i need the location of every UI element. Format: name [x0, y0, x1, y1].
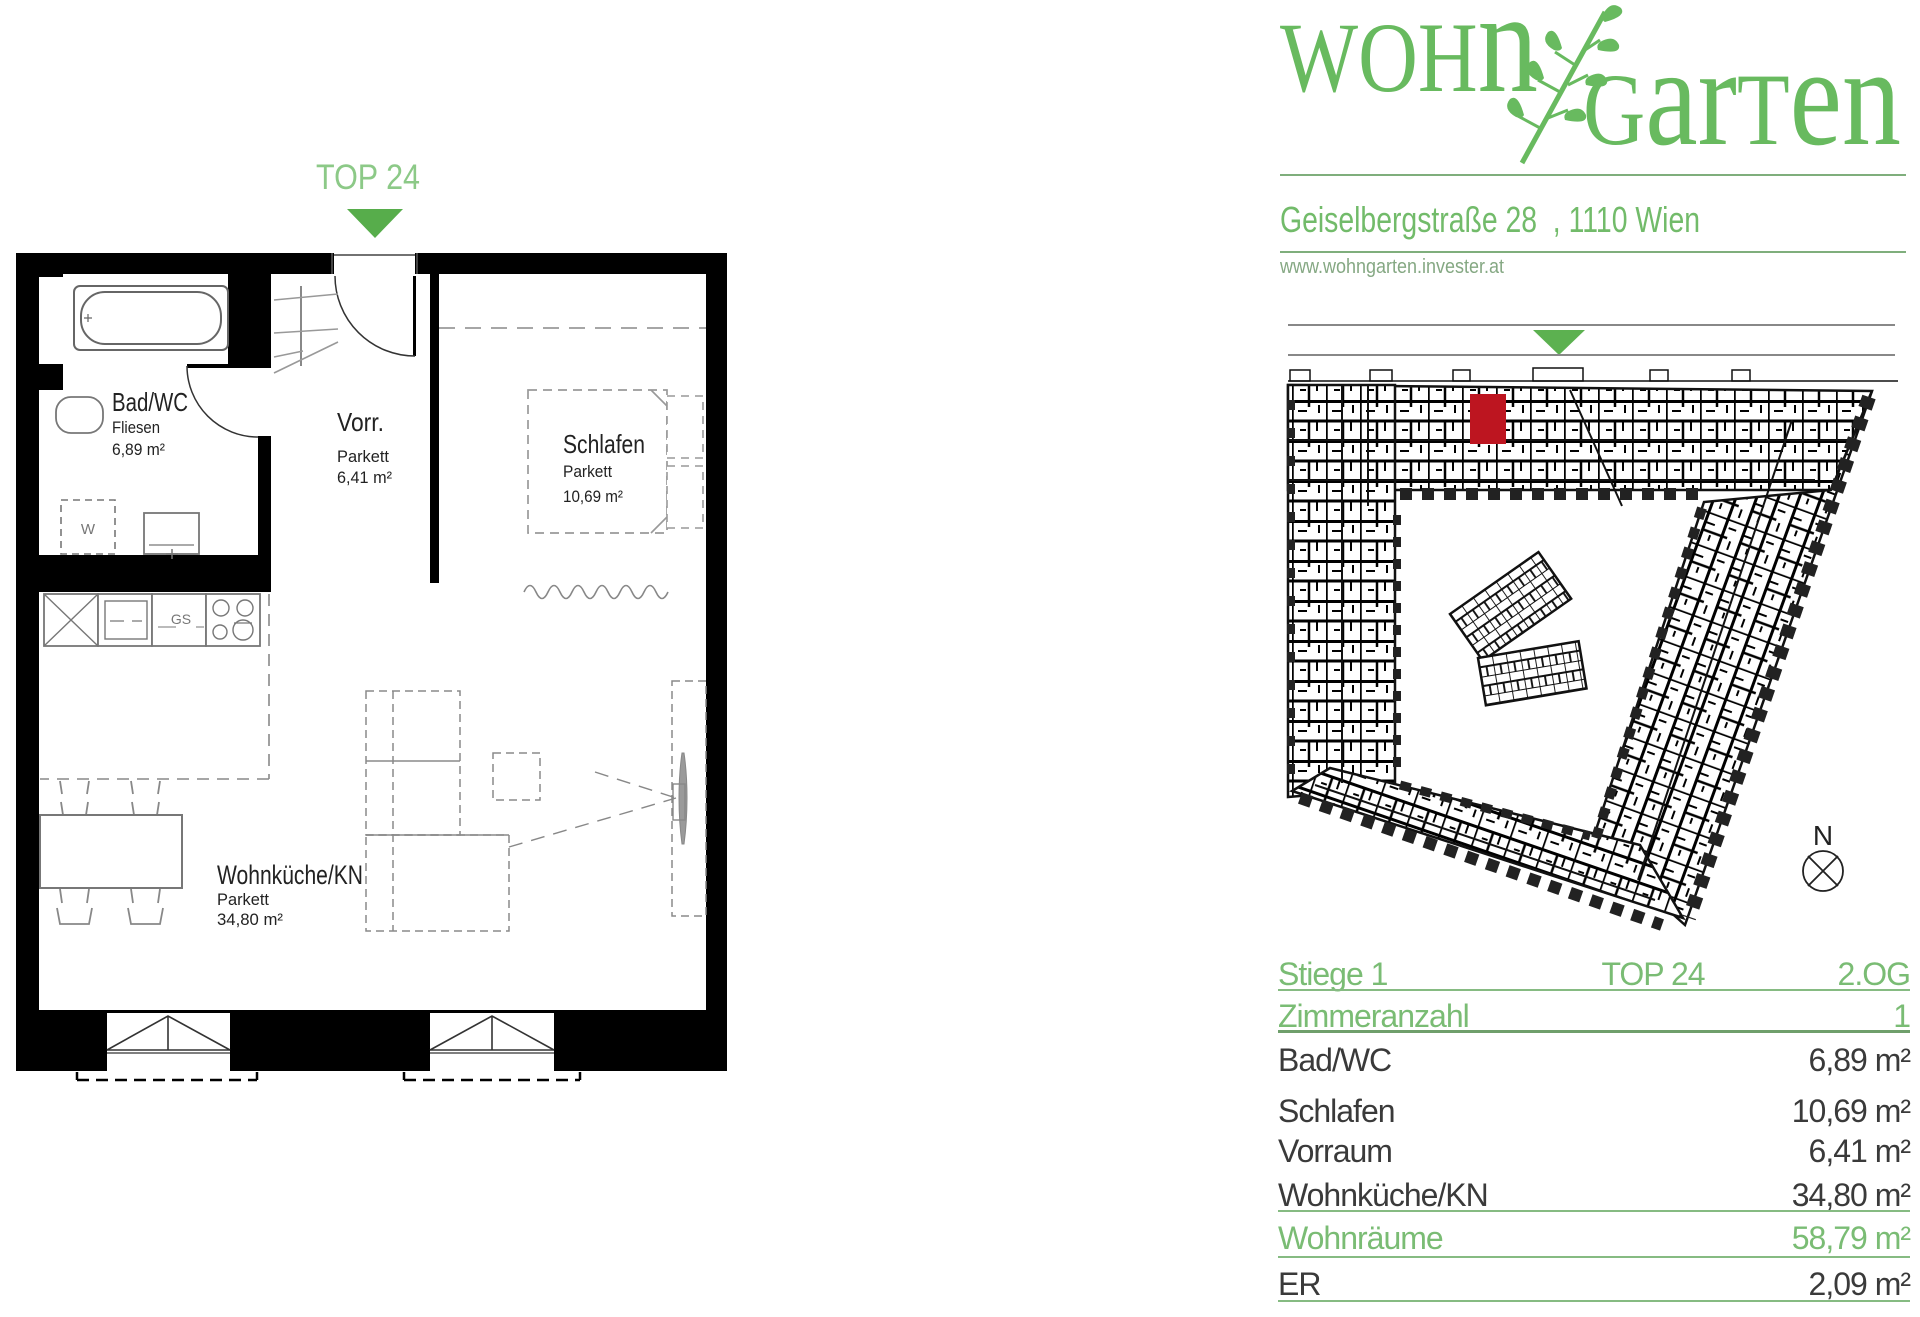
svg-text:W: W — [81, 521, 96, 538]
svg-text:Bad/WC: Bad/WC — [112, 387, 188, 417]
svg-text:N: N — [1813, 820, 1833, 851]
svg-text:6,41 m²: 6,41 m² — [337, 468, 392, 487]
svg-text:TOP 24: TOP 24 — [316, 158, 420, 197]
svg-text:www.wohngarten.invester.at: www.wohngarten.invester.at — [1279, 256, 1504, 278]
svg-text:10,69 m²: 10,69 m² — [563, 487, 623, 506]
svg-text:GS: GS — [171, 611, 191, 627]
svg-text:GarTen: GarTen — [1583, 19, 1901, 175]
svg-text:WOHn: WOHn — [1280, 0, 1538, 123]
svg-text:6,89 m²: 6,89 m² — [112, 440, 165, 459]
svg-text:Parkett: Parkett — [563, 462, 612, 481]
svg-text:Geiselbergstraße 28 , 1110 Wi: Geiselbergstraße 28 , 1110 Wien — [1280, 199, 1700, 240]
svg-text:Parkett: Parkett — [217, 890, 269, 909]
svg-text:Parkett: Parkett — [337, 447, 389, 466]
svg-text:Wohnküche/KN: Wohnküche/KN — [217, 860, 363, 890]
svg-text:Schlafen: Schlafen — [563, 429, 645, 459]
svg-text:34,80 m²: 34,80 m² — [217, 910, 283, 929]
svg-text:Vorr.: Vorr. — [337, 407, 384, 437]
svg-text:Fliesen: Fliesen — [112, 418, 160, 437]
